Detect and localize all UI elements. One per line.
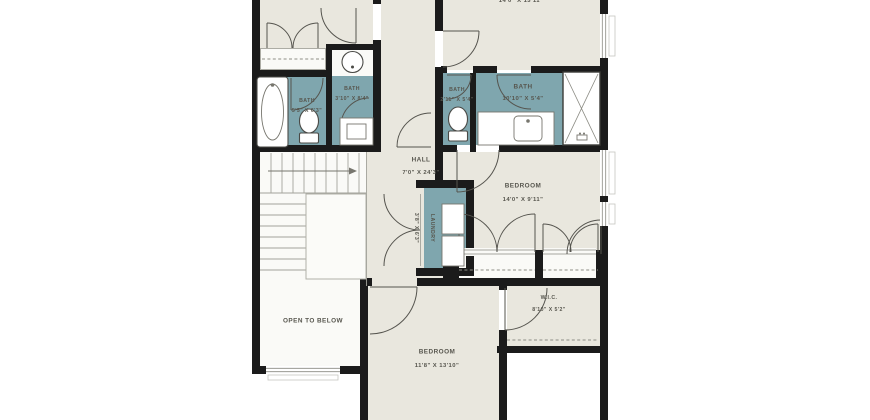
- dryer: [442, 236, 464, 266]
- hall-upper-strip: [381, 0, 435, 152]
- open-to-below-label: OPEN TO BELOW: [283, 318, 343, 325]
- laundry-label: LAUNDRY: [429, 214, 435, 242]
- washer: [442, 204, 464, 234]
- stair-void: [306, 194, 366, 279]
- bath-tub-label: BATH: [299, 98, 315, 104]
- bedroom-bottom-label: BEDROOM: [419, 349, 456, 356]
- bedroom-right-label: BEDROOM: [505, 183, 542, 190]
- floorplan-drawing: [0, 0, 870, 420]
- vanity-bath-ensuite: [478, 112, 554, 145]
- hall-dims: 7'0" X 24'3": [402, 170, 439, 176]
- window-right-3: [600, 202, 615, 226]
- bath-wc-label: BATH: [449, 87, 465, 93]
- bedroom-right-dims: 14'0" X 9'11": [503, 197, 544, 203]
- bath-ensuite-label: BATH: [513, 84, 532, 91]
- hall-label: HALL: [412, 157, 431, 164]
- wic-label: W.I.C.: [541, 295, 558, 301]
- bath-tub-dims: 5'5" X 6'3": [292, 108, 322, 114]
- floorplan-canvas: 14'0" X 13'11" BATH 5'5" X 6'3" BATH 3'1…: [0, 0, 870, 420]
- shower-bath-hall: [340, 118, 373, 145]
- bath-hall-label: BATH: [344, 86, 360, 92]
- bath-ensuite-dims: 10'10" X 5'4": [502, 96, 543, 102]
- window-bottom-left: [266, 366, 340, 380]
- room-bedroom-top: [443, 0, 600, 70]
- closet-b: [543, 255, 598, 281]
- tub-faucet: [271, 83, 275, 87]
- toilet-bath-tub: [300, 109, 319, 143]
- window-right-1: [600, 14, 615, 58]
- bedroom-bottom-dims: 11'8" X 13'10": [415, 363, 460, 369]
- bedroom-top-dims: 14'0" X 13'11": [499, 0, 544, 4]
- sink-basin: [342, 52, 363, 73]
- bath-wc-dims: 2'11" X 5'4": [440, 97, 473, 103]
- wic-dims: 8'10" X 5'2": [532, 307, 566, 313]
- bath-hall-dims: 3'10" X 8'4": [335, 96, 369, 102]
- shower-stall: [563, 72, 600, 145]
- shower-drain: [577, 135, 587, 140]
- laundry-dims: 3'8" X 6'3": [413, 213, 419, 243]
- window-right-2: [600, 150, 615, 196]
- toilet-bath-wc: [449, 107, 468, 141]
